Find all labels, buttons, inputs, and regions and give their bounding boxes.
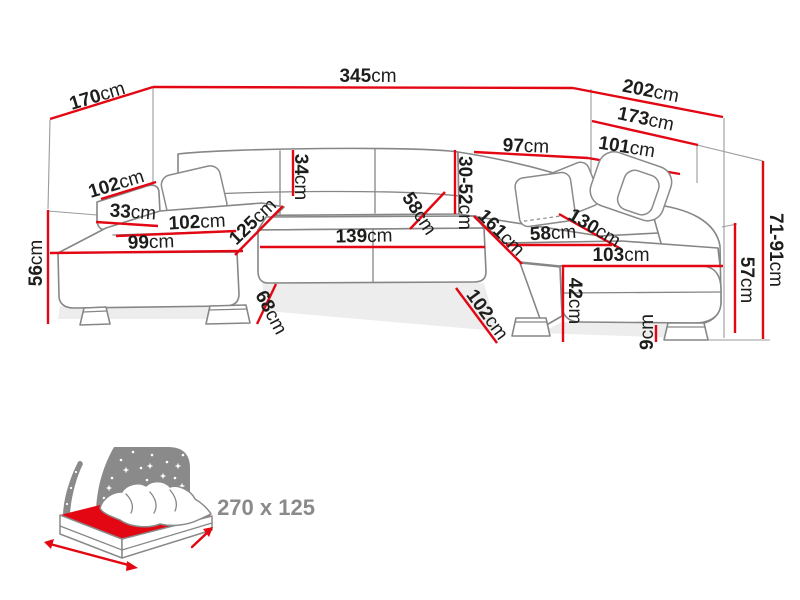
svg-text:97cm: 97cm [502, 135, 549, 158]
arrowhead [44, 539, 54, 549]
dim-97cm-label: 97cm [502, 135, 549, 158]
dim-99cm-label: 99cm [127, 231, 174, 254]
dim-345cm-line [153, 87, 573, 88]
svg-text:170cm: 170cm [67, 78, 128, 115]
dim-139cm-label: 139cm [335, 226, 392, 248]
sleep-size-label: 270 x 125 [217, 495, 315, 520]
foot [512, 318, 550, 336]
dim-33cm-label: 33cm [109, 200, 157, 224]
dim-9cm-label: 9cm [637, 314, 658, 350]
dim-345cm-label: 345cm [339, 66, 396, 87]
svg-text:139cm: 139cm [335, 226, 392, 248]
arrowhead [126, 561, 138, 571]
foot [664, 323, 708, 340]
svg-text:102cm: 102cm [168, 211, 226, 235]
moon-sliver [63, 461, 83, 514]
svg-text:56cm: 56cm [26, 240, 47, 286]
sofa-dimension-diagram-page: 170cm 345cm 202cm 173cm 101cm 97cm 102cm… [0, 0, 800, 600]
svg-text:33cm: 33cm [109, 200, 157, 224]
bed [60, 482, 212, 558]
svg-text:71-91cm: 71-91cm [765, 213, 786, 287]
dim-173cm-label: 173cm [616, 103, 676, 135]
svg-text:99cm: 99cm [127, 231, 174, 254]
foot [80, 307, 110, 325]
svg-text:345cm: 345cm [339, 66, 396, 87]
svg-text:42cm: 42cm [564, 278, 585, 324]
foot [206, 305, 250, 324]
guide-line [48, 211, 97, 215]
guide-line [697, 145, 763, 161]
guide-line [48, 120, 50, 209]
dim-103cm-label: 103cm [592, 245, 649, 266]
dim-102cm-seat-label: 102cm [168, 211, 226, 235]
sofa-dimension-diagram: 170cm 345cm 202cm 173cm 101cm 97cm 102cm… [0, 0, 800, 600]
dim-34cm-label: 34cm [290, 154, 311, 200]
sofa-left-chaise-front [58, 252, 239, 308]
sleep-function-icon: 270 x 125 [44, 447, 315, 571]
svg-text:9cm: 9cm [637, 314, 658, 350]
svg-text:103cm: 103cm [592, 245, 649, 266]
svg-text:34cm: 34cm [290, 154, 311, 200]
dim-170cm-label: 170cm [67, 78, 128, 115]
svg-text:57cm: 57cm [736, 257, 757, 303]
dim-56cm-label: 56cm [26, 240, 47, 286]
dim-71-91cm-label: 71-91cm [765, 213, 786, 287]
svg-text:30-52cm: 30-52cm [454, 156, 475, 230]
shadow-middle [262, 283, 497, 331]
svg-text:173cm: 173cm [616, 103, 676, 135]
dim-42cm-label: 42cm [564, 278, 585, 324]
dim-30-52cm-label: 30-52cm [454, 156, 475, 230]
dim-57cm-label: 57cm [736, 257, 757, 303]
